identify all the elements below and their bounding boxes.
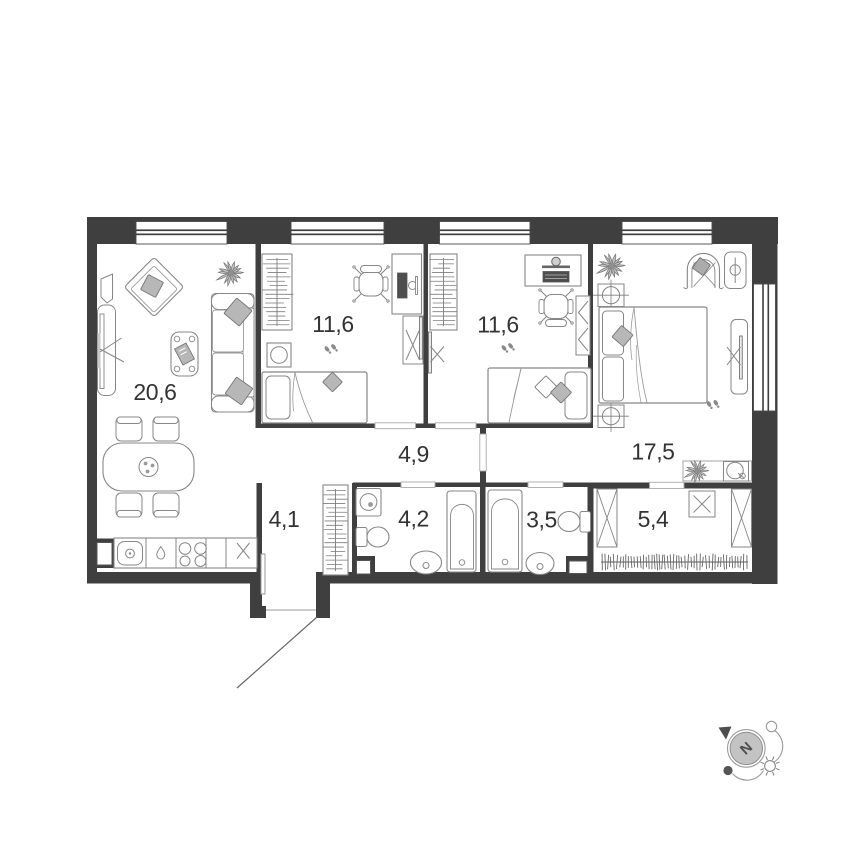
svg-text:11,6: 11,6 [477,312,518,338]
svg-text:4,1: 4,1 [269,506,300,532]
svg-text:3,5: 3,5 [526,507,557,533]
svg-text:4,2: 4,2 [398,506,429,532]
svg-text:17,5: 17,5 [631,439,674,465]
svg-text:11,6: 11,6 [312,311,353,337]
svg-text:5,4: 5,4 [638,506,669,532]
svg-text:4,9: 4,9 [398,441,429,467]
svg-text:20,6: 20,6 [133,379,176,405]
